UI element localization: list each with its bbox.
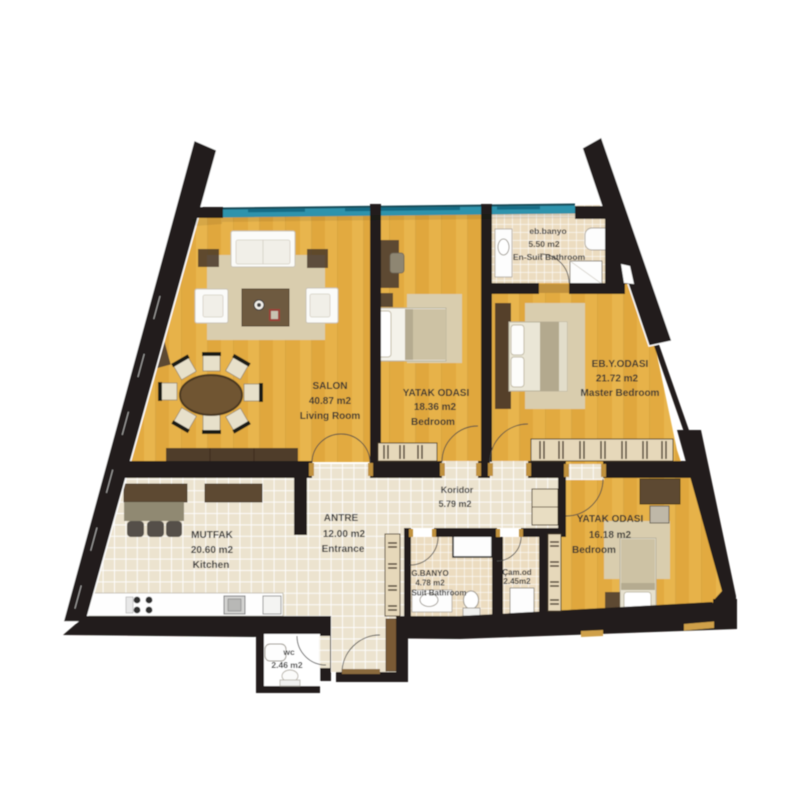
svg-text:ANTRE: ANTRE [324, 513, 359, 524]
svg-text:5.79 m2: 5.79 m2 [438, 499, 471, 509]
svg-text:5.50 m2: 5.50 m2 [528, 239, 559, 249]
svg-text:eb.banyo: eb.banyo [529, 226, 566, 236]
svg-text:Bedroom: Bedroom [411, 417, 455, 428]
svg-text:YATAK ODASI: YATAK ODASI [577, 514, 644, 525]
svg-text:Bedroom: Bedroom [572, 545, 616, 556]
svg-text:Kitchen: Kitchen [193, 560, 230, 571]
svg-text:G.BANYO: G.BANYO [411, 569, 448, 578]
svg-text:2.46 m2: 2.46 m2 [271, 660, 302, 670]
svg-text:Suit Bathroom: Suit Bathroom [411, 589, 466, 598]
svg-text:20.60 m2: 20.60 m2 [191, 545, 234, 556]
svg-text:4.78 m2: 4.78 m2 [415, 579, 445, 588]
svg-text:16.18 m2: 16.18 m2 [589, 530, 632, 541]
svg-text:Çam.od: Çam.od [502, 568, 531, 577]
svg-text:SALON: SALON [313, 381, 348, 392]
svg-text:YATAK ODASI: YATAK ODASI [403, 388, 470, 399]
svg-text:MUTFAK: MUTFAK [191, 530, 233, 541]
svg-text:Koridor: Koridor [441, 485, 474, 495]
svg-text:Master Bedroom: Master Bedroom [581, 388, 660, 399]
svg-text:Living Room: Living Room [300, 411, 361, 422]
svg-text:18.36 m2: 18.36 m2 [414, 402, 457, 413]
svg-text:2.45m2: 2.45m2 [503, 577, 531, 586]
svg-text:EB.Y.ODASI: EB.Y.ODASI [592, 359, 649, 370]
svg-text:wc: wc [282, 647, 295, 657]
svg-text:40.87 m2: 40.87 m2 [309, 396, 352, 407]
svg-text:21.72 m2: 21.72 m2 [596, 374, 639, 385]
svg-text:En-Suit Bathroom: En-Suit Bathroom [513, 252, 586, 262]
svg-text:Entrance: Entrance [322, 544, 365, 555]
svg-text:12.00 m2: 12.00 m2 [323, 529, 366, 540]
